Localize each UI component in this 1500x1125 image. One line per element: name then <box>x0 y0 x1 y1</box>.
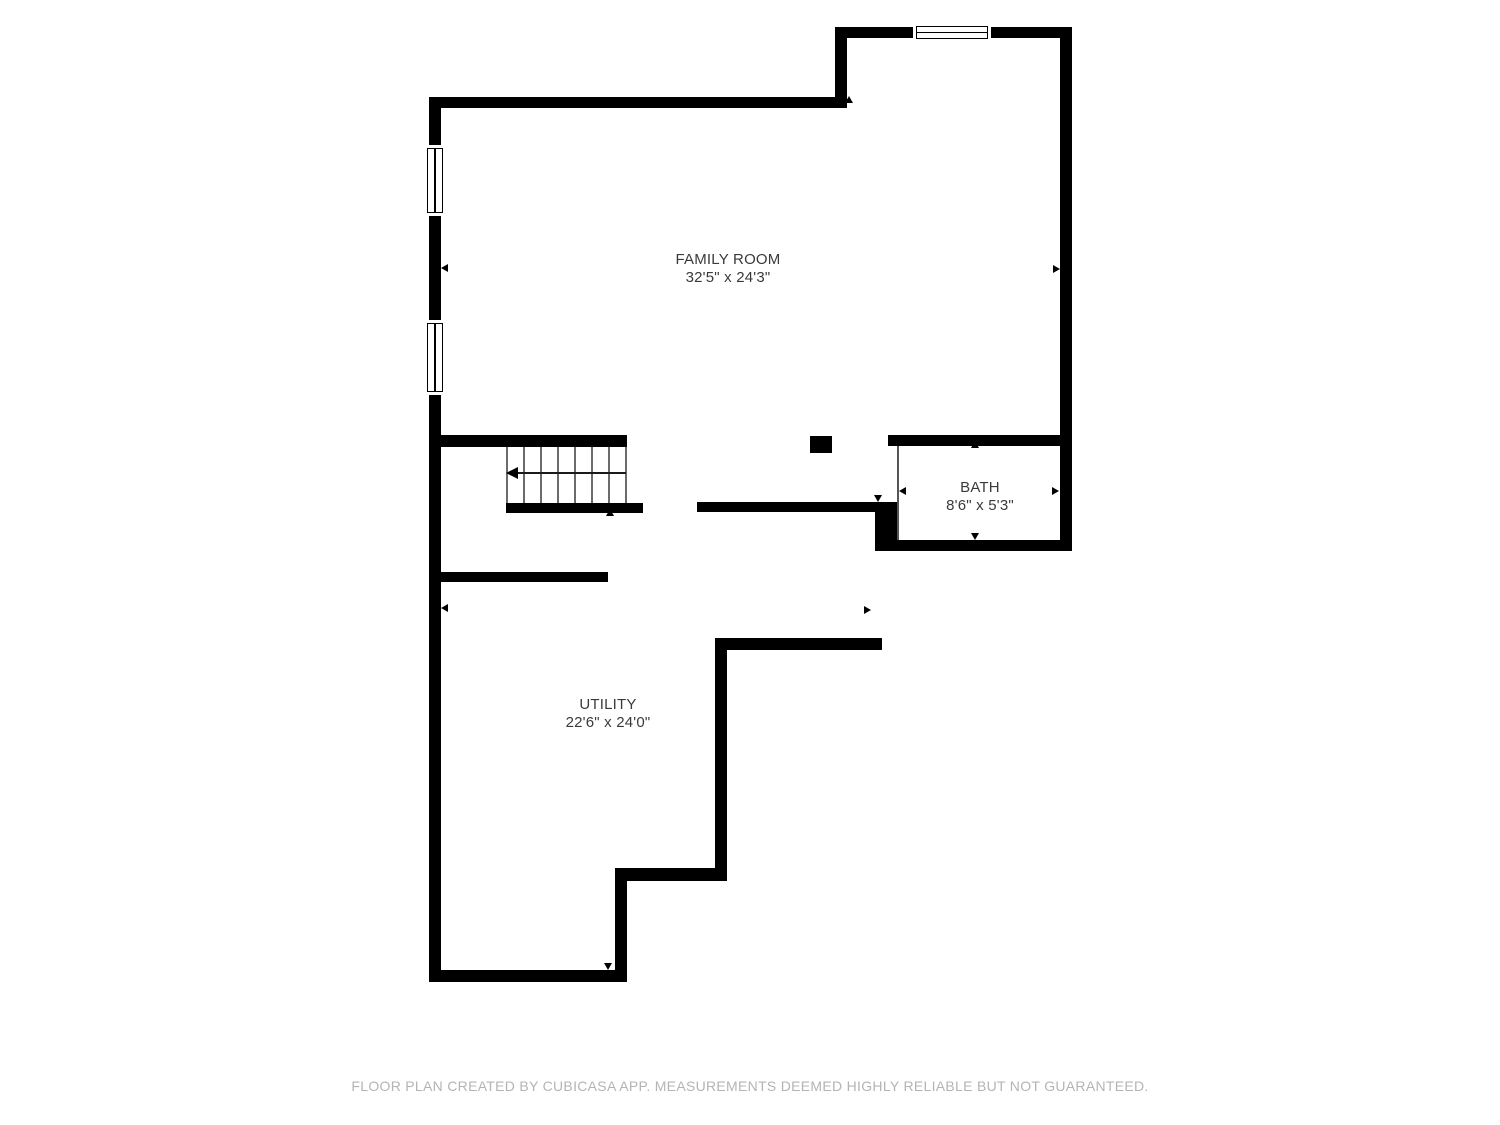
wall-utility-divider <box>429 572 608 582</box>
structural-column <box>810 436 832 453</box>
wall-marker-right-icon <box>864 606 871 614</box>
wall-marker-down-icon <box>604 963 612 970</box>
room-dimensions: 8'6" x 5'3" <box>880 497 1080 515</box>
room-name: FAMILY ROOM <box>578 251 878 269</box>
window-pane-line <box>434 324 436 391</box>
stairs-direction-line <box>515 472 626 474</box>
room-dimensions: 32'5" x 24'3" <box>578 269 878 287</box>
stair-tread <box>608 447 610 503</box>
wall-step-horizontal-1 <box>615 868 727 881</box>
room-name: UTILITY <box>458 696 758 714</box>
wall-bath-bottom <box>875 540 1072 551</box>
wall-marker-up-icon <box>606 509 614 516</box>
window-pane-line <box>434 149 436 212</box>
wall-utility-bottom <box>429 970 627 982</box>
room-label-utility: UTILITY 22'6" x 24'0" <box>458 696 758 732</box>
wall-marker-up-icon <box>971 441 979 448</box>
window-left-2 <box>427 323 443 392</box>
wall-marker-left-icon <box>441 604 448 612</box>
wall-marker-left-icon <box>441 264 448 272</box>
wall-left <box>429 97 441 982</box>
wall-family-room-bottom <box>429 435 627 447</box>
staircase <box>506 447 627 503</box>
wall-stair-bottom <box>506 503 643 513</box>
room-dimensions: 22'6" x 24'0" <box>458 714 758 732</box>
wall-marker-down-icon <box>971 533 979 540</box>
stair-tread <box>574 447 576 503</box>
room-label-bath: BATH 8'6" x 5'3" <box>880 479 1080 515</box>
stairs-direction-arrow-icon <box>506 467 518 479</box>
wall-marker-up-icon <box>845 96 853 103</box>
window-pane-line <box>917 32 987 34</box>
wall-hall <box>697 502 898 512</box>
room-label-family-room: FAMILY ROOM 32'5" x 24'3" <box>578 251 878 287</box>
floor-plan-page: FAMILY ROOM 32'5" x 24'3" BATH 8'6" x 5'… <box>0 0 1500 1125</box>
wall-marker-right-icon <box>1053 265 1060 273</box>
wall-top-left <box>429 97 847 108</box>
wall-step-vertical-1 <box>615 880 627 982</box>
wall-right <box>1060 27 1072 551</box>
wall-step-vertical-2 <box>715 650 727 881</box>
wall-step-horizontal-2 <box>715 638 882 650</box>
stair-tread <box>523 447 525 503</box>
stair-tread <box>591 447 593 503</box>
window-top <box>916 26 988 39</box>
window-left-1 <box>427 148 443 213</box>
stair-tread <box>557 447 559 503</box>
stair-tread <box>625 447 627 503</box>
stair-tread <box>540 447 542 503</box>
footer-disclaimer: FLOOR PLAN CREATED BY CUBICASA APP. MEAS… <box>0 1078 1500 1094</box>
room-name: BATH <box>880 479 1080 497</box>
